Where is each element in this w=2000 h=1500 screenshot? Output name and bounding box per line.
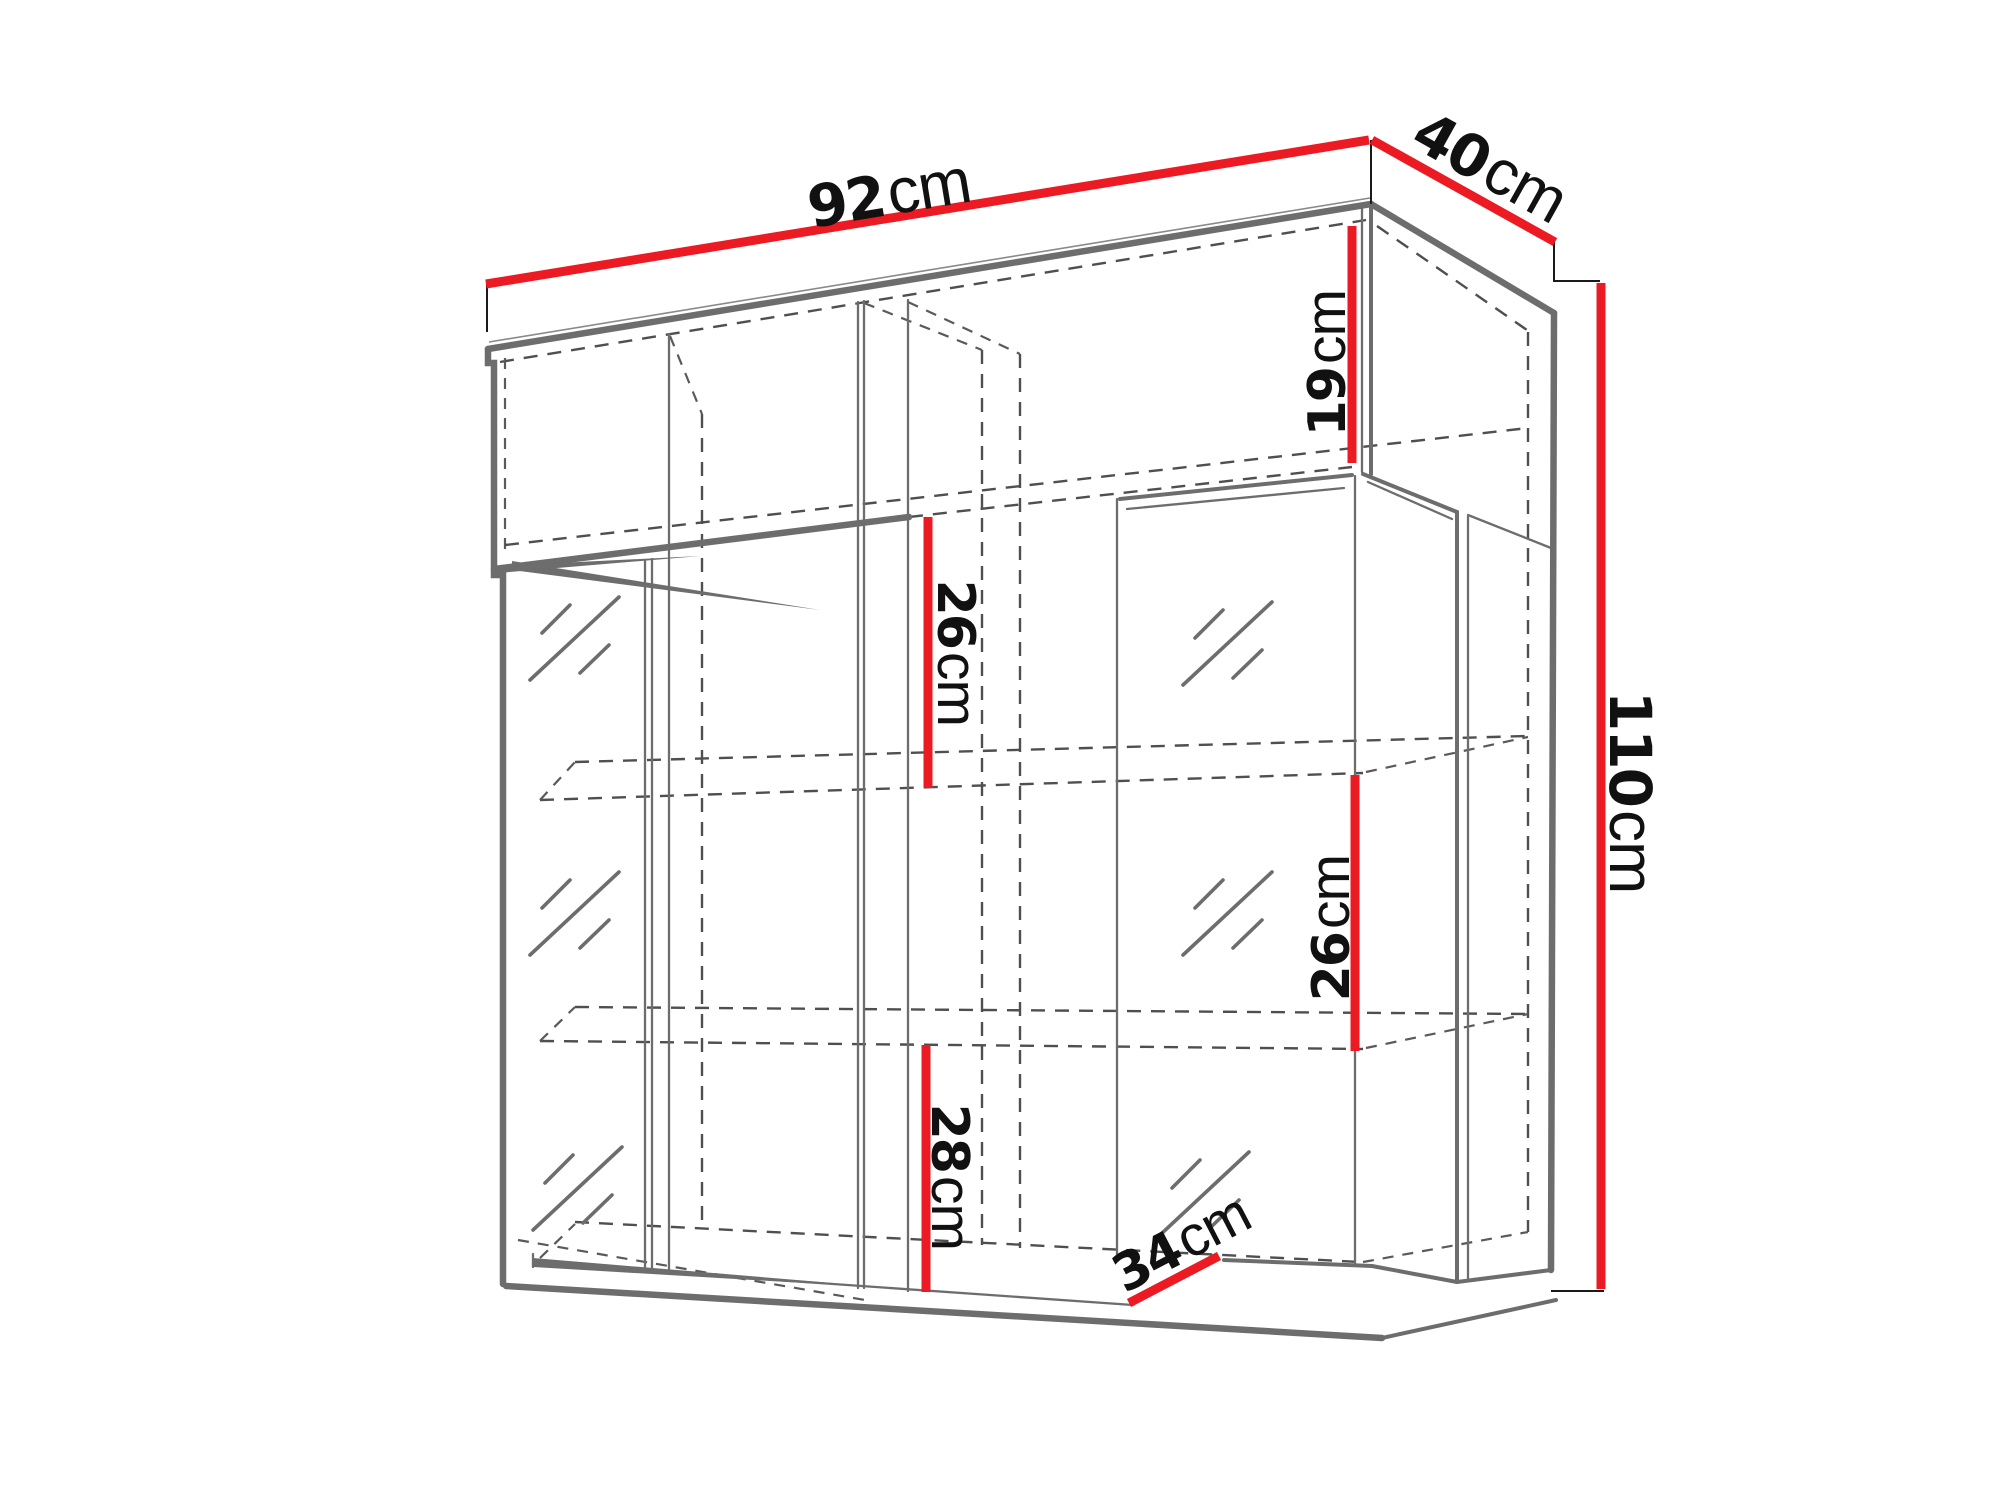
dimension-label-height: 110 cm bbox=[1596, 691, 1668, 893]
glint-group bbox=[1183, 872, 1272, 955]
dimension-unit: cm bbox=[1298, 855, 1362, 929]
glint-group bbox=[530, 872, 619, 955]
dimension-label-width: 92 cm bbox=[802, 144, 976, 242]
dimension-unit: cm bbox=[1294, 290, 1358, 364]
dimension-diagram-canvas: 92 cm 40 cm 110 cm 19 cm 26 cm 26 cm 28 … bbox=[0, 0, 2000, 1500]
dimension-value: 92 bbox=[803, 162, 890, 242]
dimension-label-right-compartment: 26 cm bbox=[1298, 855, 1362, 1001]
dimension-label-bottom-compartment: 28 cm bbox=[919, 1104, 983, 1250]
glint-group bbox=[533, 1147, 622, 1230]
dimension-label-middle-compartment: 26 cm bbox=[925, 580, 989, 726]
dimension-unit: cm bbox=[925, 652, 989, 726]
dimension-unit: cm bbox=[919, 1176, 983, 1250]
dimension-label-depth: 40 cm bbox=[1401, 94, 1579, 237]
dimension-value: 110 bbox=[1596, 691, 1664, 806]
dimension-label-top-compartment: 19 cm bbox=[1294, 290, 1358, 436]
interior-hidden-lines bbox=[500, 220, 1528, 1300]
cabinet-outline bbox=[488, 198, 1556, 1338]
glass-glint-marks bbox=[530, 597, 1272, 1235]
cabinet-dimension-diagram: 92 cm 40 cm 110 cm 19 cm 26 cm 26 cm 28 … bbox=[0, 0, 2000, 1500]
dimension-extension-ticks bbox=[487, 140, 1604, 1291]
dimension-value: 19 bbox=[1298, 368, 1358, 436]
dimension-unit: cm bbox=[1596, 810, 1668, 893]
dimension-unit: cm bbox=[882, 144, 976, 229]
dimension-label-bottom-depth: 34 cm bbox=[1101, 1181, 1260, 1305]
glint-group bbox=[1183, 602, 1272, 685]
dimension-value: 26 bbox=[925, 580, 985, 648]
dimension-value: 28 bbox=[919, 1104, 979, 1172]
dimension-value: 26 bbox=[1302, 933, 1362, 1001]
glint-group bbox=[530, 597, 619, 680]
